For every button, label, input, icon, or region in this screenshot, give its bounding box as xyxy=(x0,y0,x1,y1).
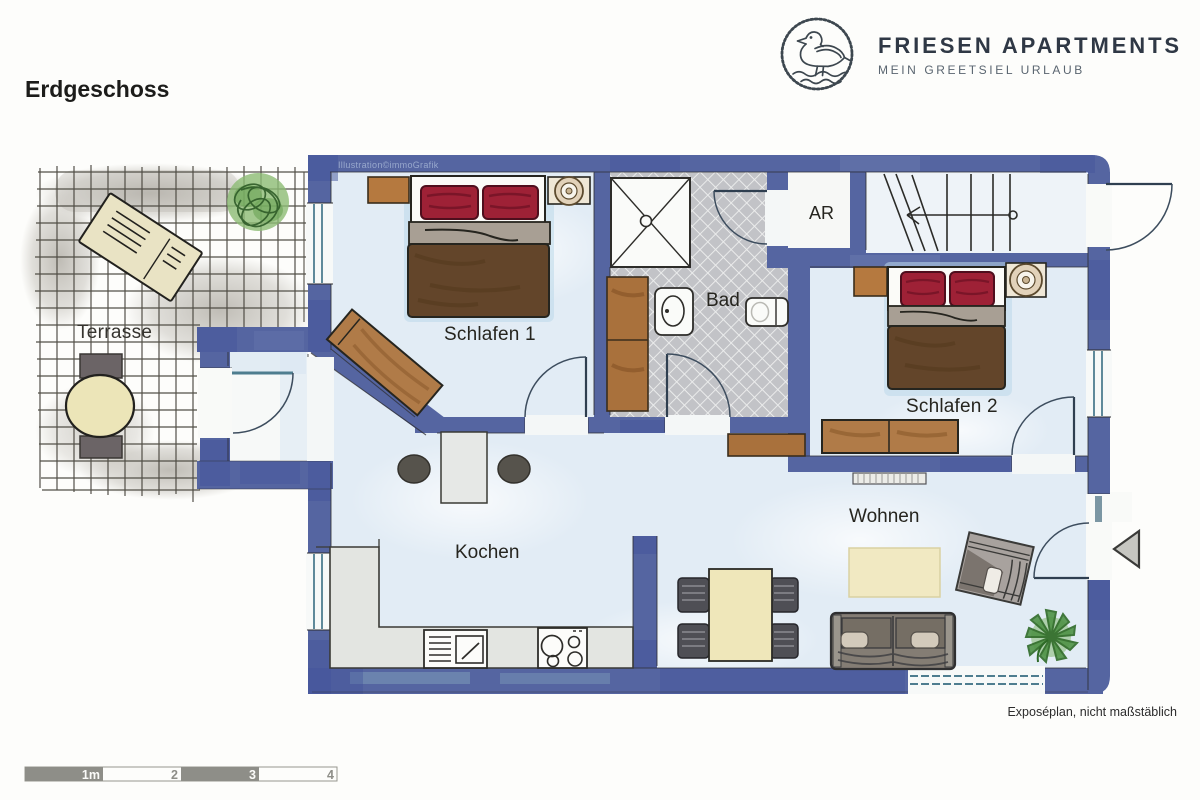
svg-text:FRIESEN APARTMENTS: FRIESEN APARTMENTS xyxy=(878,33,1182,58)
svg-text:3: 3 xyxy=(249,768,256,782)
svg-text:MEIN GREETSIEL URLAUB: MEIN GREETSIEL URLAUB xyxy=(878,63,1085,77)
svg-text:Schlafen 1: Schlafen 1 xyxy=(444,324,536,345)
svg-text:Erdgeschoss: Erdgeschoss xyxy=(25,76,169,102)
svg-text:Wohnen: Wohnen xyxy=(849,506,919,527)
svg-text:Exposéplan, nicht maßstäblich: Exposéplan, nicht maßstäblich xyxy=(1007,705,1177,719)
svg-text:Schlafen 2: Schlafen 2 xyxy=(906,396,998,417)
svg-text:Terrasse: Terrasse xyxy=(77,322,152,343)
svg-text:AR: AR xyxy=(809,203,834,223)
svg-text:Illustration©immoGrafik: Illustration©immoGrafik xyxy=(338,160,439,170)
svg-text:1m: 1m xyxy=(82,768,100,782)
svg-text:4: 4 xyxy=(327,768,334,782)
svg-text:Kochen: Kochen xyxy=(455,542,519,563)
svg-text:Bad: Bad xyxy=(706,290,740,311)
svg-text:2: 2 xyxy=(171,768,178,782)
